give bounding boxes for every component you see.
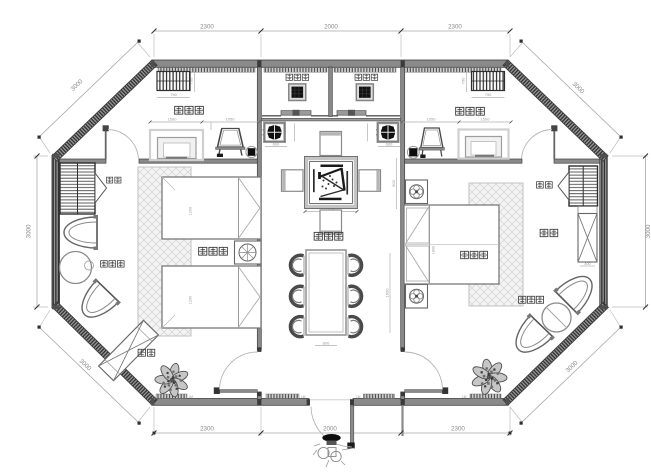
svg-text:3000: 3000	[645, 224, 651, 238]
svg-text:1050: 1050	[427, 117, 437, 122]
svg-text:1M: 1M	[301, 395, 306, 399]
svg-text:1500: 1500	[481, 117, 491, 122]
svg-text:2000: 2000	[324, 24, 338, 31]
svg-text:2000: 2000	[323, 426, 337, 433]
svg-text:2300: 2300	[200, 24, 214, 31]
svg-text:700: 700	[461, 77, 466, 84]
svg-text:1600: 1600	[385, 288, 390, 298]
svg-text:1M: 1M	[189, 395, 194, 399]
svg-text:1M: 1M	[356, 395, 361, 399]
svg-text:2300: 2300	[448, 24, 462, 31]
svg-text:1M: 1M	[462, 395, 467, 399]
svg-text:2300: 2300	[200, 426, 214, 433]
svg-text:750: 750	[485, 92, 492, 97]
svg-text:3000: 3000	[26, 224, 33, 238]
svg-text:1200: 1200	[189, 207, 193, 215]
svg-text:500: 500	[391, 179, 396, 186]
svg-text:800: 800	[323, 341, 330, 346]
svg-text:2300: 2300	[451, 426, 465, 433]
svg-text:1200: 1200	[189, 296, 193, 304]
svg-text:1500: 1500	[168, 117, 178, 122]
svg-text:750: 750	[170, 92, 177, 97]
svg-text:1050: 1050	[226, 117, 236, 122]
svg-text:400: 400	[584, 262, 590, 266]
svg-text:1800: 1800	[432, 246, 436, 254]
